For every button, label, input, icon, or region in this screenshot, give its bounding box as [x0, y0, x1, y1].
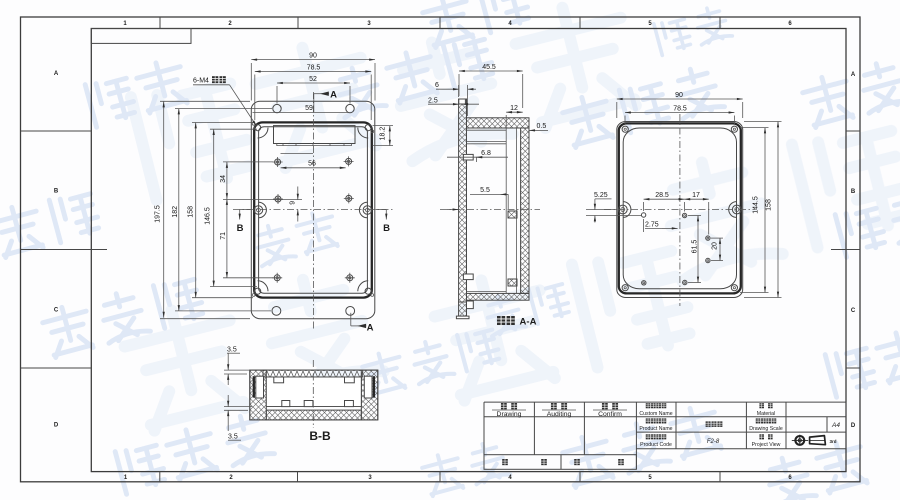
- svg-text:A-A: A-A: [520, 317, 537, 328]
- svg-text:6: 6: [435, 82, 439, 89]
- svg-text:A: A: [367, 323, 374, 334]
- svg-text:B: B: [54, 189, 59, 195]
- svg-text:34: 34: [220, 175, 227, 183]
- svg-text:2.75: 2.75: [645, 221, 659, 228]
- svg-text:A: A: [851, 72, 856, 78]
- svg-text:5.5: 5.5: [480, 187, 490, 194]
- svg-text:B: B: [383, 223, 390, 234]
- svg-text:52: 52: [309, 76, 317, 83]
- svg-text:90: 90: [309, 53, 317, 60]
- svg-text:Material: Material: [757, 411, 775, 417]
- svg-text:Product Name: Product Name: [639, 426, 672, 432]
- svg-text:Drawing: Drawing: [497, 411, 522, 418]
- svg-text:56: 56: [308, 161, 316, 168]
- svg-text:Product Code: Product Code: [640, 442, 672, 448]
- svg-text:3.5: 3.5: [228, 434, 238, 441]
- svg-text:3rd: 3rd: [830, 439, 837, 444]
- svg-text:A: A: [54, 71, 59, 77]
- svg-text:9: 9: [289, 201, 296, 205]
- svg-text:18.2: 18.2: [380, 127, 387, 141]
- svg-text:59: 59: [305, 105, 313, 112]
- svg-text:146.5: 146.5: [205, 207, 212, 225]
- svg-text:B: B: [237, 223, 244, 234]
- svg-text:45.5: 45.5: [482, 64, 496, 71]
- svg-text:12: 12: [510, 105, 518, 112]
- svg-text:Auditing: Auditing: [547, 411, 572, 418]
- svg-text:61.5: 61.5: [691, 240, 698, 254]
- svg-text:F2-8: F2-8: [707, 439, 720, 445]
- svg-text:78.5: 78.5: [307, 64, 321, 71]
- svg-text:C: C: [54, 308, 59, 314]
- svg-text:6-M4: 6-M4: [193, 78, 209, 85]
- svg-text:2.5: 2.5: [428, 97, 438, 104]
- svg-text:17: 17: [692, 192, 700, 199]
- svg-text:B-B: B-B: [309, 429, 331, 443]
- svg-text:A: A: [330, 90, 337, 101]
- svg-text:78.5: 78.5: [673, 105, 687, 112]
- svg-text:90: 90: [675, 92, 683, 99]
- svg-text:C: C: [851, 308, 856, 314]
- svg-text:197.5: 197.5: [155, 205, 162, 223]
- svg-text:Custom Name: Custom Name: [639, 411, 672, 417]
- svg-text:Project View: Project View: [752, 442, 781, 448]
- svg-text:3.5: 3.5: [227, 347, 237, 354]
- svg-text:6.8: 6.8: [481, 150, 491, 157]
- svg-text:158: 158: [765, 199, 772, 211]
- svg-text:D: D: [851, 423, 856, 429]
- svg-text:5.25: 5.25: [594, 192, 608, 199]
- svg-text:Drawing Scale: Drawing Scale: [749, 426, 783, 432]
- svg-text:28.5: 28.5: [655, 192, 669, 199]
- svg-text:144.5: 144.5: [752, 196, 759, 214]
- svg-text:0.5: 0.5: [537, 123, 547, 130]
- svg-text:20: 20: [712, 242, 719, 250]
- svg-text:182: 182: [172, 206, 179, 218]
- svg-text:71: 71: [220, 232, 227, 240]
- svg-text:A4: A4: [831, 422, 840, 429]
- svg-text:Confirm: Confirm: [598, 411, 622, 418]
- svg-text:D: D: [54, 423, 59, 429]
- svg-text:158: 158: [187, 206, 194, 218]
- svg-text:B: B: [851, 189, 856, 195]
